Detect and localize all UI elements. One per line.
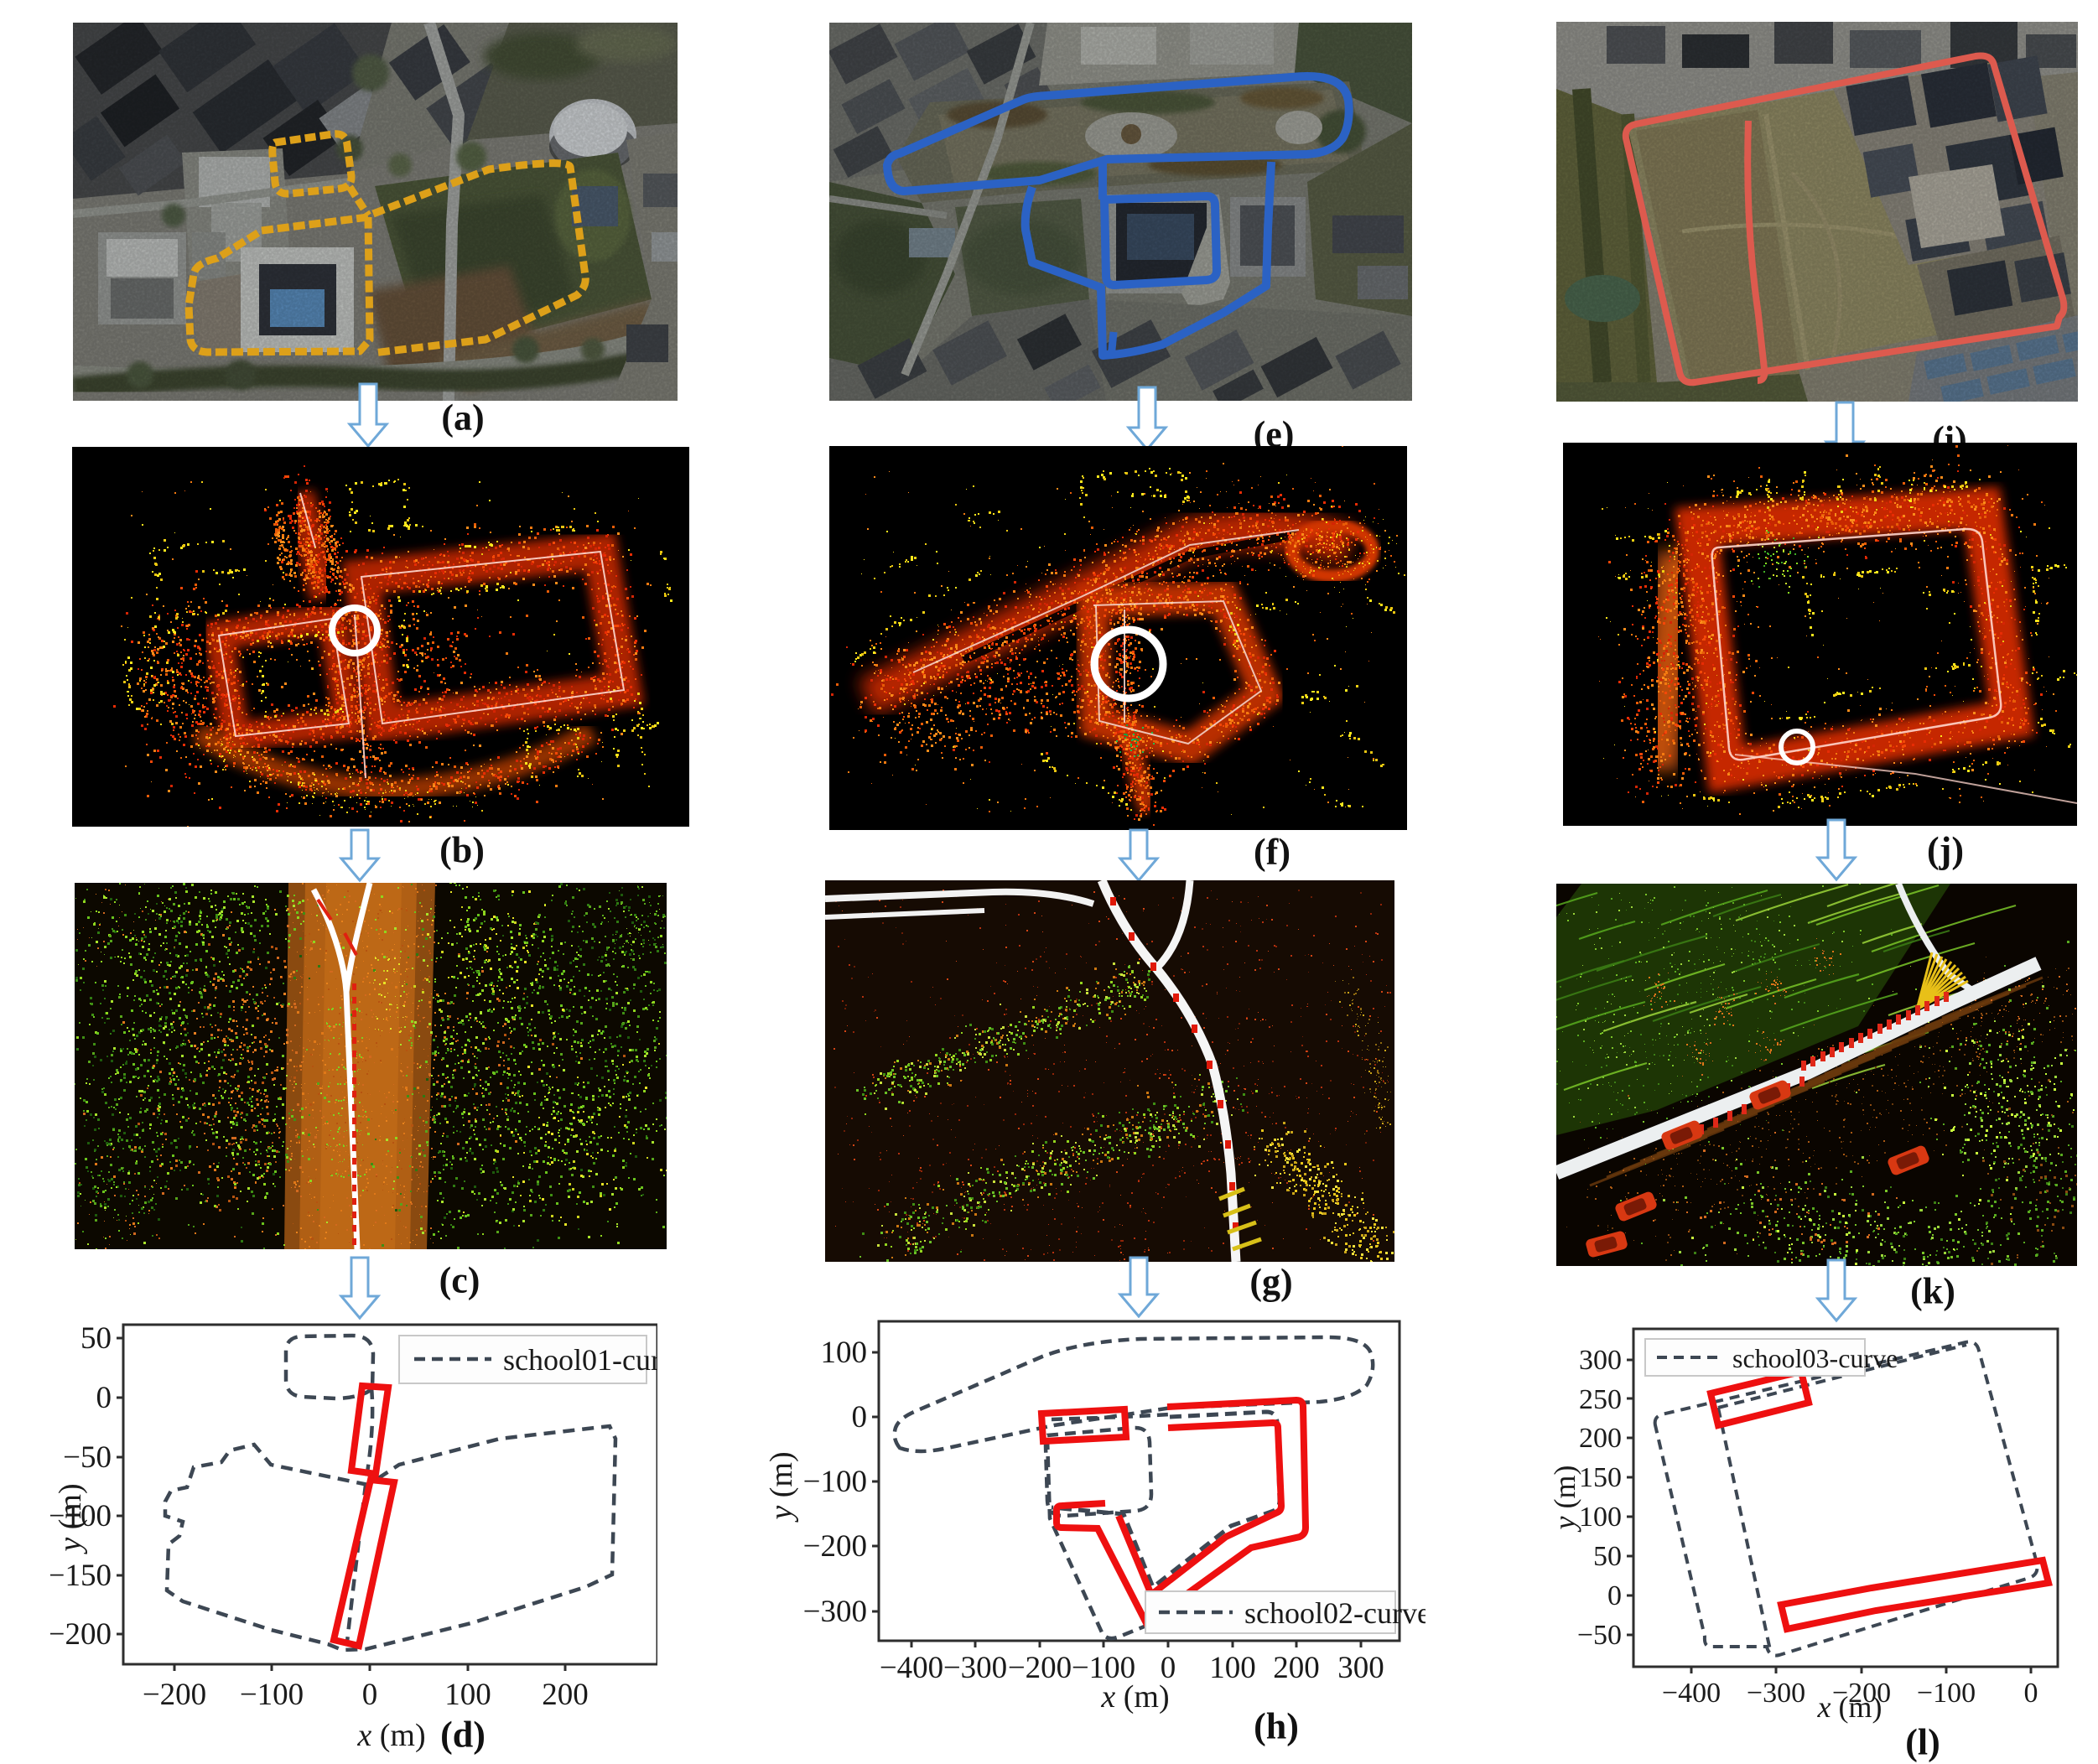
svg-text:school01-curve: school01-curve bbox=[503, 1343, 657, 1377]
svg-text:0: 0 bbox=[2024, 1678, 2038, 1709]
svg-text:100: 100 bbox=[1579, 1502, 1622, 1533]
svg-text:−200: −200 bbox=[50, 1617, 112, 1652]
svg-text:−100: −100 bbox=[803, 1465, 867, 1499]
svg-text:100: 100 bbox=[821, 1336, 868, 1370]
svg-text:200: 200 bbox=[1273, 1651, 1320, 1685]
svg-text:200: 200 bbox=[1579, 1423, 1622, 1454]
svg-text:−200: −200 bbox=[1008, 1651, 1072, 1685]
svg-text:−50: −50 bbox=[63, 1440, 112, 1475]
svg-text:300: 300 bbox=[1337, 1651, 1384, 1685]
svg-text:−200: −200 bbox=[803, 1529, 867, 1564]
svg-text:0: 0 bbox=[852, 1400, 868, 1435]
svg-text:300: 300 bbox=[1579, 1345, 1622, 1376]
svg-text:−300: −300 bbox=[1747, 1678, 1805, 1709]
svg-text:y (m): y (m) bbox=[1548, 1466, 1581, 1533]
svg-text:0: 0 bbox=[96, 1381, 112, 1415]
svg-text:−200: −200 bbox=[143, 1678, 206, 1712]
svg-text:200: 200 bbox=[542, 1678, 589, 1712]
svg-text:−100: −100 bbox=[240, 1678, 304, 1712]
svg-text:x (m): x (m) bbox=[356, 1718, 425, 1753]
svg-text:y (m): y (m) bbox=[764, 1451, 799, 1523]
svg-text:−100: −100 bbox=[1917, 1678, 1976, 1709]
svg-text:−300: −300 bbox=[943, 1651, 1007, 1685]
svg-text:100: 100 bbox=[1209, 1651, 1256, 1685]
svg-text:50: 50 bbox=[80, 1321, 112, 1356]
svg-text:school03-curve: school03-curve bbox=[1732, 1343, 1898, 1373]
svg-text:−400: −400 bbox=[880, 1651, 943, 1685]
svg-text:−300: −300 bbox=[803, 1595, 867, 1629]
svg-text:250: 250 bbox=[1579, 1384, 1622, 1415]
svg-text:0: 0 bbox=[1607, 1580, 1622, 1611]
svg-text:x (m): x (m) bbox=[1817, 1690, 1882, 1724]
svg-text:50: 50 bbox=[1593, 1541, 1622, 1572]
svg-text:100: 100 bbox=[444, 1678, 491, 1712]
svg-text:150: 150 bbox=[1579, 1462, 1622, 1493]
svg-text:−50: −50 bbox=[1577, 1620, 1622, 1651]
svg-text:school02-curve: school02-curve bbox=[1244, 1596, 1425, 1630]
svg-text:−400: −400 bbox=[1662, 1678, 1721, 1709]
svg-text:−150: −150 bbox=[50, 1559, 112, 1593]
svg-text:0: 0 bbox=[362, 1678, 378, 1712]
svg-text:y (m): y (m) bbox=[53, 1483, 88, 1554]
svg-text:x (m): x (m) bbox=[1100, 1679, 1169, 1715]
